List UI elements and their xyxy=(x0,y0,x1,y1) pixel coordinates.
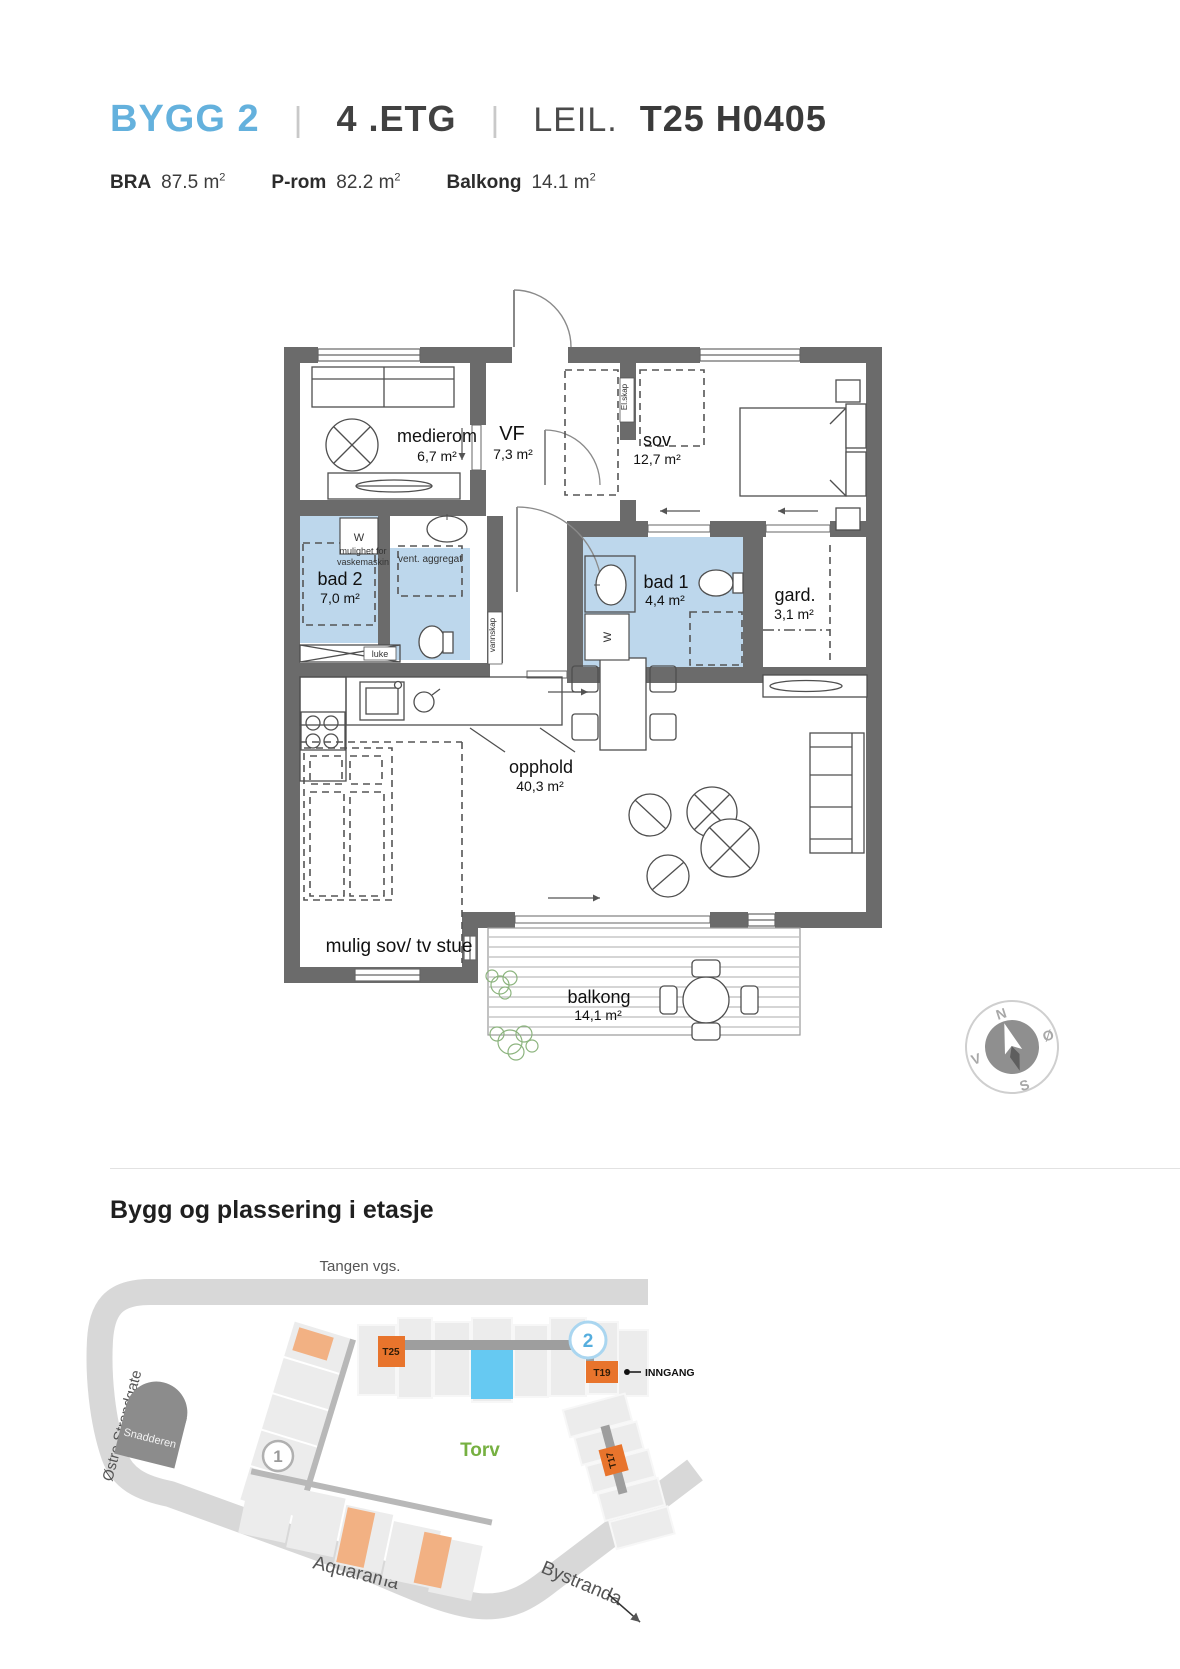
room-label-vf: VF xyxy=(499,423,525,445)
room-label-gard: gard. xyxy=(774,585,815,605)
floor-plan: W W mulighet for vaskemaskin vent. aggre… xyxy=(284,290,1071,1107)
compass-icon: N Ø S V xyxy=(954,989,1071,1107)
room-label-bad1: bad 1 xyxy=(643,572,688,592)
el-skap-label: El.skap xyxy=(620,383,629,410)
room-label-sov: sov xyxy=(643,430,671,450)
bygg2-corridor xyxy=(401,1340,573,1350)
room-area-opphold: 40,3 m² xyxy=(516,778,564,794)
pool-area xyxy=(471,1350,513,1399)
drawing-canvas: W W mulighet for vaskemaskin vent. aggre… xyxy=(0,0,1180,1669)
bygg2-right-wing: T17 xyxy=(563,1390,675,1553)
room-label-opphold: opphold xyxy=(509,757,573,777)
room-area-medierom: 6,7 m² xyxy=(417,448,457,464)
bygg1-number: 1 xyxy=(273,1447,282,1466)
unit-t19-label: T19 xyxy=(593,1368,611,1379)
bygg2-number: 2 xyxy=(583,1331,594,1352)
vannskap-label: vannskap xyxy=(488,617,497,652)
balcony xyxy=(486,928,800,1060)
room-label-tvstue: mulig sov/ tv stue xyxy=(326,936,473,957)
room-area-bad1: 4,4 m² xyxy=(645,592,685,608)
room-label-medierom: medierom xyxy=(397,426,477,446)
w-label-bad1: W xyxy=(602,631,614,642)
entry-door-icon xyxy=(514,290,571,347)
laundry-note-2: vaskemaskin xyxy=(337,557,389,567)
room-label-balkong: balkong xyxy=(567,987,630,1007)
section-divider xyxy=(110,1168,1180,1169)
room-area-bad2: 7,0 m² xyxy=(320,590,360,606)
room-area-vf: 7,3 m² xyxy=(493,446,533,462)
luke-label: luke xyxy=(372,649,389,659)
laundry-note-1: mulighet for xyxy=(339,546,386,556)
inngang-label: INNGANG xyxy=(645,1367,695,1379)
sitemap-heading: Bygg og plassering i etasje xyxy=(110,1196,434,1225)
floorplan-page: BYGG 2 | 4 .ETG | LEIL. T25 H0405 BRA87.… xyxy=(0,0,1180,1669)
torv-label: Torv xyxy=(460,1440,500,1461)
vent-aggregat-label: vent. aggregat xyxy=(398,554,462,565)
room-label-bad2: bad 2 xyxy=(317,569,362,589)
w-label-bad2: W xyxy=(354,532,365,544)
site-map: Tangen vgs. Østre Strandgate Tangen Aqua… xyxy=(99,1258,695,1622)
unit-t25-label: T25 xyxy=(382,1347,400,1358)
street-label-tangen-vgs: Tangen vgs. xyxy=(320,1258,401,1275)
room-area-gard: 3,1 m² xyxy=(774,606,814,622)
room-area-balkong: 14,1 m² xyxy=(574,1007,622,1023)
inngang-dot xyxy=(624,1369,630,1375)
room-area-sov: 12,7 m² xyxy=(633,451,681,467)
